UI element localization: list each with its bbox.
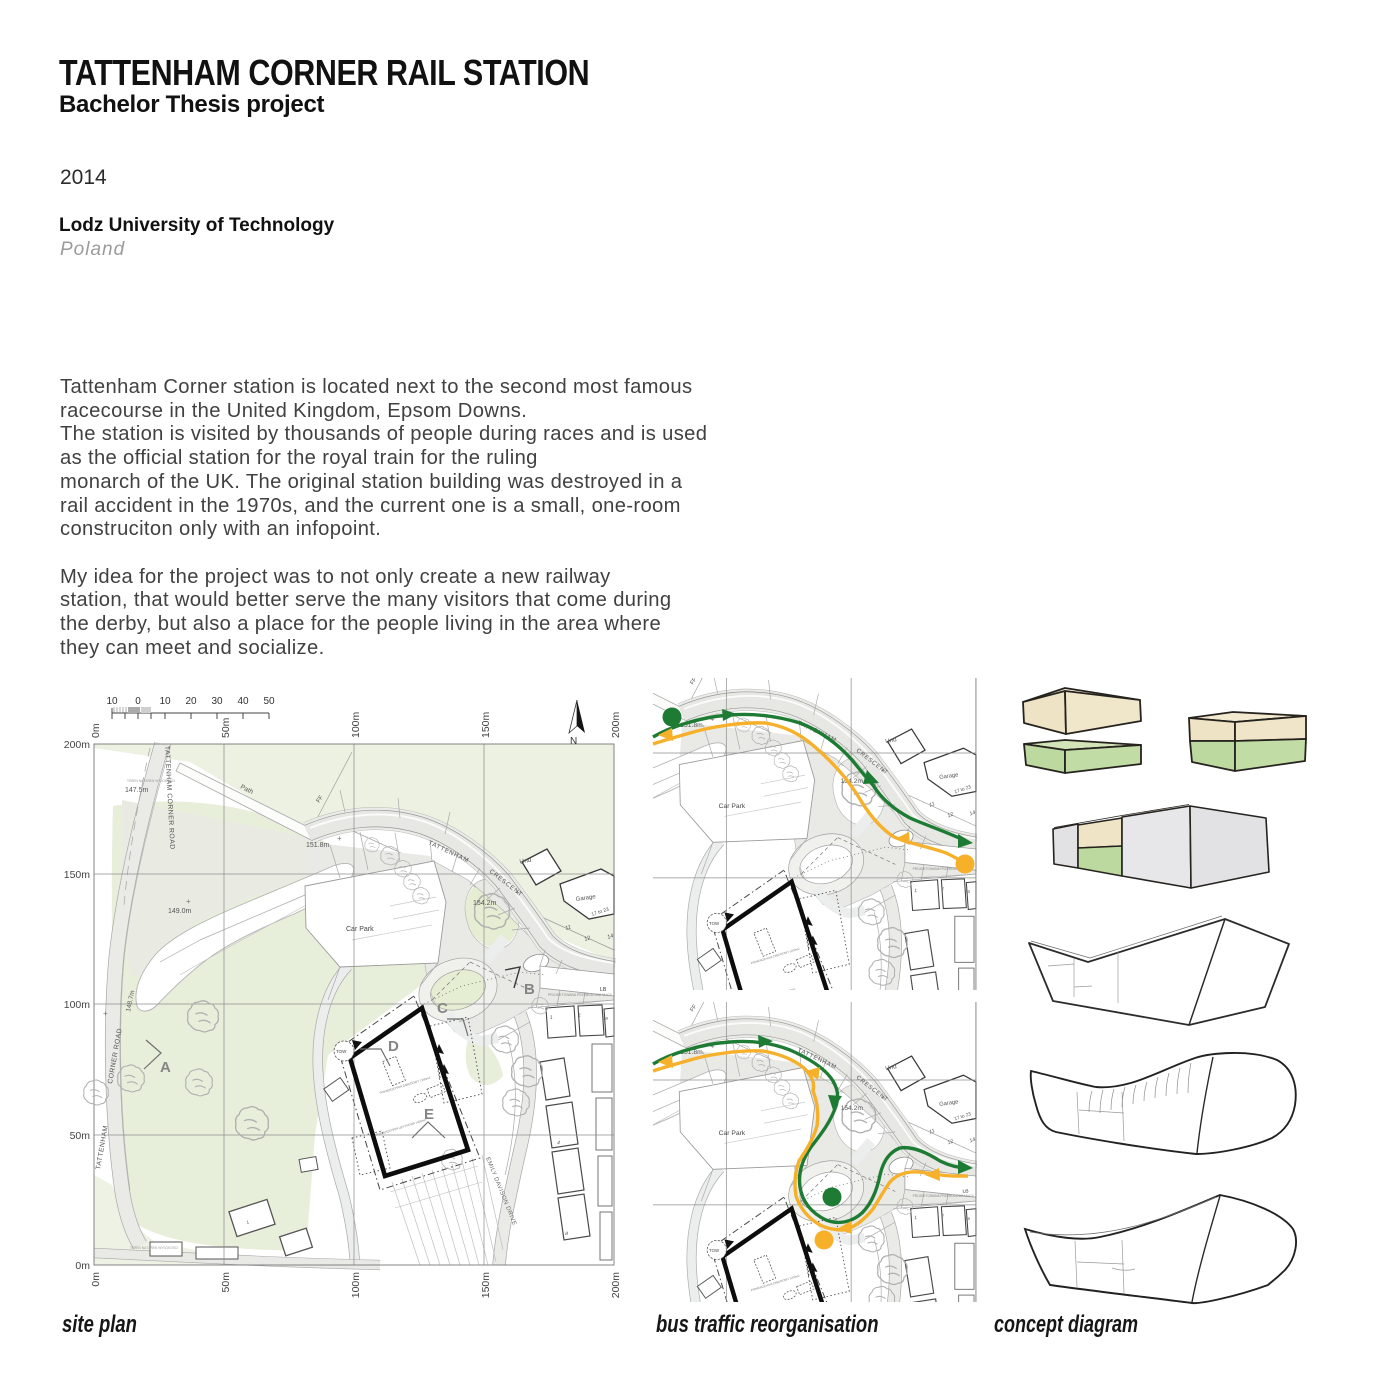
svg-text:D: D — [388, 1038, 399, 1055]
svg-text:50m: 50m — [220, 717, 232, 738]
svg-text:0m: 0m — [90, 1272, 102, 1287]
svg-text:150m: 150m — [64, 869, 91, 881]
svg-text:E: E — [424, 1106, 434, 1123]
svg-text:50m: 50m — [220, 1272, 232, 1293]
svg-text:20: 20 — [185, 696, 197, 707]
svg-text:B: B — [524, 981, 535, 998]
svg-text:10: 10 — [159, 696, 171, 707]
svg-text:0: 0 — [135, 696, 141, 707]
svg-text:50: 50 — [263, 696, 275, 707]
svg-text:100m: 100m — [350, 711, 362, 738]
svg-text:C: C — [437, 1000, 448, 1017]
svg-text:200m: 200m — [610, 1272, 622, 1299]
svg-text:200m: 200m — [64, 739, 91, 751]
svg-text:30: 30 — [211, 696, 223, 707]
svg-text:100m: 100m — [350, 1272, 362, 1299]
svg-text:0m: 0m — [75, 1260, 90, 1272]
svg-text:150m: 150m — [480, 1272, 492, 1299]
svg-text:50m: 50m — [70, 1130, 91, 1142]
svg-text:40: 40 — [237, 696, 249, 707]
svg-text:0m: 0m — [90, 723, 102, 738]
svg-text:N: N — [570, 736, 577, 747]
svg-text:10: 10 — [106, 696, 118, 707]
svg-text:200m: 200m — [610, 711, 622, 738]
svg-text:150m: 150m — [480, 711, 492, 738]
svg-text:A: A — [160, 1059, 171, 1076]
svg-text:100m: 100m — [64, 999, 91, 1011]
